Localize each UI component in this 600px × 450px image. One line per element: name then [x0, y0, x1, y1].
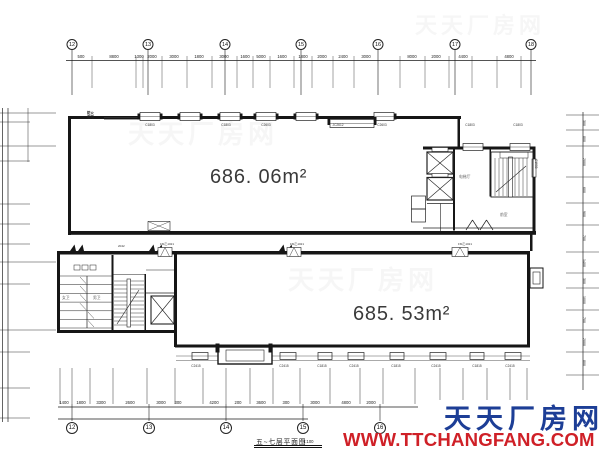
window-tag: C2603 [377, 123, 386, 127]
dimension-value: 900 [582, 211, 586, 217]
grid-bubble: 17 [450, 39, 461, 50]
door-tag: FM乙1021 [160, 242, 174, 246]
dimension-value: 800 [582, 136, 586, 142]
ghost-watermark: 天天厂房网 [288, 260, 438, 297]
right-dimension-ladder [566, 112, 599, 390]
window-tag: C1815 [472, 364, 481, 368]
watermark-url: WWW.TTCHANGFANG.COM [343, 429, 595, 450]
window-tag: C2603 [261, 123, 270, 127]
door-tag: FM乙1021 [290, 242, 304, 246]
dimension-value: 3000 [156, 400, 165, 405]
grid-bubble: 14 [220, 422, 232, 434]
dimension-value: 3000 [219, 54, 228, 59]
dimension-value: 4200 [209, 400, 218, 405]
window-tag: C1815 [391, 364, 400, 368]
window-tag: C1815 [317, 364, 326, 368]
grid-bubble: 18 [526, 39, 537, 50]
dimension-value: 1400 [582, 259, 586, 267]
dimension-value: 1300 [134, 54, 143, 59]
sheet-scale: 1:100 [303, 439, 313, 444]
dimension-value: 500 [78, 54, 85, 59]
dimension-value: 3000 [310, 400, 319, 405]
dimension-value: 1600 [240, 54, 249, 59]
corridor-doors [70, 245, 468, 257]
window-tag: JC2612 [333, 123, 344, 127]
ghost-watermark: 天天厂房网 [415, 8, 545, 40]
dimension-value: 1000 [582, 296, 586, 304]
dimension-value: 300 [175, 400, 182, 405]
dimension-value: 5000 [256, 54, 265, 59]
fire-shutter-label: 防火 卷帘 [87, 112, 94, 120]
dimension-value: 2000 [582, 338, 586, 346]
area-label-upper: 686. 06m² [210, 166, 307, 189]
dimension-value: 300 [582, 278, 586, 284]
dimension-value: 2000 [366, 400, 375, 405]
dimension-value: 3300 [96, 400, 105, 405]
stair-top-right [491, 152, 533, 197]
dimension-value: 1600 [277, 54, 286, 59]
dimension-value: 1400 [59, 400, 68, 405]
dimension-value: 200 [235, 400, 242, 405]
dimension-value: 700 [582, 317, 586, 323]
grid-bubble: 15 [296, 39, 307, 50]
elevator-core [412, 148, 537, 232]
dimension-value: 4800 [341, 400, 350, 405]
dimension-value: 2600 [125, 400, 134, 405]
dimension-value: 4800 [504, 54, 513, 59]
window-tag: C2415 [191, 364, 200, 368]
title-underline [254, 445, 322, 448]
room-label: 电梯厅 [459, 175, 470, 180]
window-tag: C2415 [431, 364, 440, 368]
window-tag: C1803 [221, 123, 230, 127]
grid-bubble: 12 [66, 422, 78, 434]
elevator-bottom-left [151, 296, 174, 324]
room-label: 前室 [500, 213, 508, 218]
floorplan-screenshot: 天天厂房网 天天厂房网 天天厂房网 12131415161718 1213141… [0, 0, 600, 450]
dimension-value: 3000 [169, 54, 178, 59]
grid-bubble: 14 [220, 39, 231, 50]
area-label-lower: 685. 53m² [353, 303, 450, 326]
dimension-value: 2000 [431, 54, 440, 59]
door-tag: FM乙1021 [458, 242, 472, 246]
dimension-value: 300 [582, 120, 586, 126]
door-tag: 2042 [118, 244, 125, 248]
dimension-value: 1800 [298, 54, 307, 59]
left-dimension-ladder [0, 108, 56, 422]
dimension-value: 8000 [407, 54, 416, 59]
grid-bubble: 13 [143, 422, 155, 434]
grid-bubble: 15 [297, 422, 309, 434]
window-tag: C2415 [279, 364, 288, 368]
dimension-value: 2000 [582, 158, 586, 166]
dimension-value: 300 [283, 400, 290, 405]
dimension-value: 2400 [338, 54, 347, 59]
stair-bottom-left [114, 279, 144, 327]
dimension-value: 700 [582, 235, 586, 241]
dimension-value: 1800 [76, 400, 85, 405]
room-label: 男卫 [93, 296, 101, 301]
window-tag: C1803 [145, 123, 154, 127]
window-tag: C1803 [465, 123, 474, 127]
dimension-value: 800 [582, 360, 586, 366]
dimension-value: 1800 [194, 54, 203, 59]
window-tag: C1803 [513, 123, 522, 127]
dimension-value: 600 [582, 187, 586, 193]
grid-bubble: 12 [67, 39, 78, 50]
room-label: 女卫 [62, 296, 70, 301]
dimension-value: 4400 [458, 54, 467, 59]
dimension-value: 2000 [147, 54, 156, 59]
ghost-watermark: 天天厂房网 [128, 114, 278, 151]
dimension-value: 3000 [361, 54, 370, 59]
floorplan-linework [0, 0, 600, 450]
grid-bubble: 13 [143, 39, 154, 50]
side-window-tag: C1503 [534, 159, 538, 168]
window-tag: C2415 [505, 364, 514, 368]
dimension-value: 3600 [256, 400, 265, 405]
dimension-value: 8800 [109, 54, 118, 59]
dimension-value: 2000 [317, 54, 326, 59]
window-tag: C2415 [349, 364, 358, 368]
grid-bubble: 16 [373, 39, 384, 50]
sheet-title: 五~七层平面图 [256, 436, 306, 446]
